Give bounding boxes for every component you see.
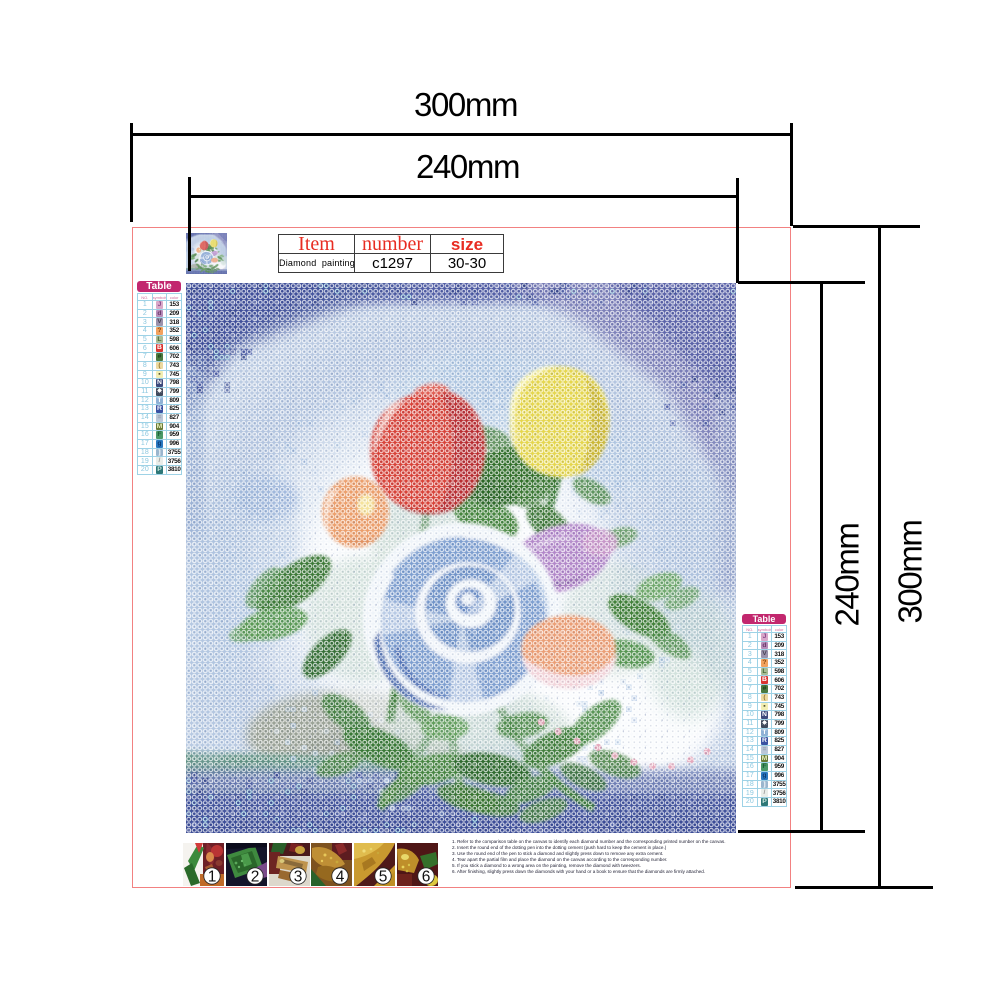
svg-text:5: 5 — [379, 869, 388, 886]
svg-text:2: 2 — [250, 869, 259, 886]
svg-text:4: 4 — [336, 869, 345, 886]
svg-text:6: 6 — [422, 869, 431, 886]
svg-text:3: 3 — [293, 869, 302, 886]
svg-text:1: 1 — [208, 869, 217, 886]
